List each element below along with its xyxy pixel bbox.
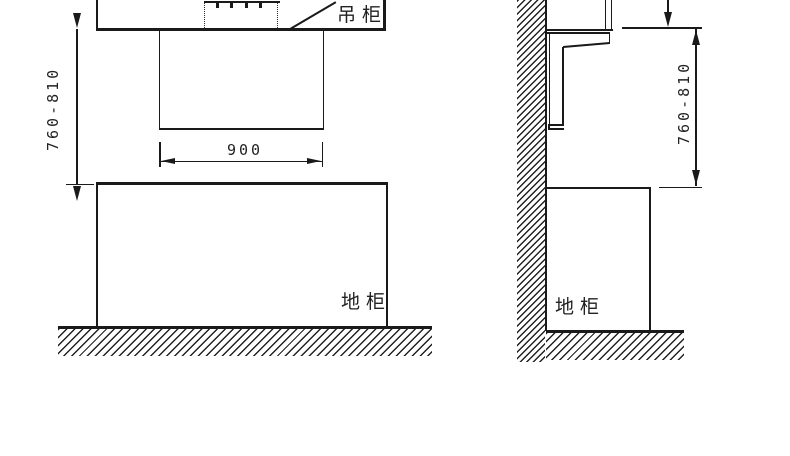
duct-tick-3: [245, 3, 248, 8]
width-dim-arrow-right: [307, 158, 321, 164]
duct-hidden-line-right: [277, 3, 278, 28]
width-dim-arrow-left: [161, 158, 175, 164]
front-hanging-cabinet-left-edge: [96, 0, 98, 30]
upper-dim-bottom-arrow: [664, 12, 672, 27]
side-hanging-cabinet-door-outer: [611, 0, 613, 31]
height-dim-side-label: 760-810: [675, 67, 693, 145]
hood-side-back-edge: [549, 33, 551, 129]
height-dim-front-top-arrow: [73, 13, 81, 28]
height-dim-side-bottom-arrow: [692, 170, 700, 185]
upper-dim-ext-line: [622, 27, 702, 29]
duct-tick-1: [216, 3, 219, 8]
ground-hatch-side: [546, 333, 684, 360]
side-base-cabinet-label: 地柜: [555, 292, 605, 319]
height-dim-side-bottom-ext: [659, 187, 702, 189]
height-dim-front-bottom-arrow: [73, 186, 81, 201]
hanging-cabinet-leader-line: [290, 1, 336, 29]
hood-side-lip-top: [549, 124, 564, 126]
side-hanging-cabinet-door-inner: [605, 0, 607, 29]
hood-side-lip-left: [548, 124, 550, 130]
duct-tick-2: [230, 3, 233, 8]
height-dim-front-bottom-tick: [66, 184, 94, 186]
duct-tick-4: [259, 3, 262, 8]
hood-side-slant: [563, 42, 610, 48]
ground-hatch-front: [58, 329, 432, 356]
front-base-cabinet-label: 地柜: [341, 287, 391, 314]
installation-diagram: 吊柜 900 地柜 760-810 760-810 地柜: [0, 0, 790, 456]
width-dim-line: [160, 161, 322, 163]
height-dim-side-line: [695, 29, 697, 186]
hood-side-front-edge: [562, 47, 564, 125]
height-dim-side-top-arrow: [692, 30, 700, 45]
hood-side-top: [547, 32, 610, 34]
width-dim-label: 900: [227, 141, 263, 159]
wall-hatch: [517, 0, 545, 362]
height-dim-front-line: [76, 29, 78, 184]
width-dim-ext-right: [322, 142, 324, 167]
duct-hidden-line-left: [204, 3, 205, 28]
hood-side-lip-bottom: [548, 128, 564, 130]
range-hood-front: [159, 30, 324, 130]
front-hanging-cabinet-label: 吊柜: [337, 0, 387, 27]
height-dim-front-label: 760-810: [44, 73, 62, 151]
